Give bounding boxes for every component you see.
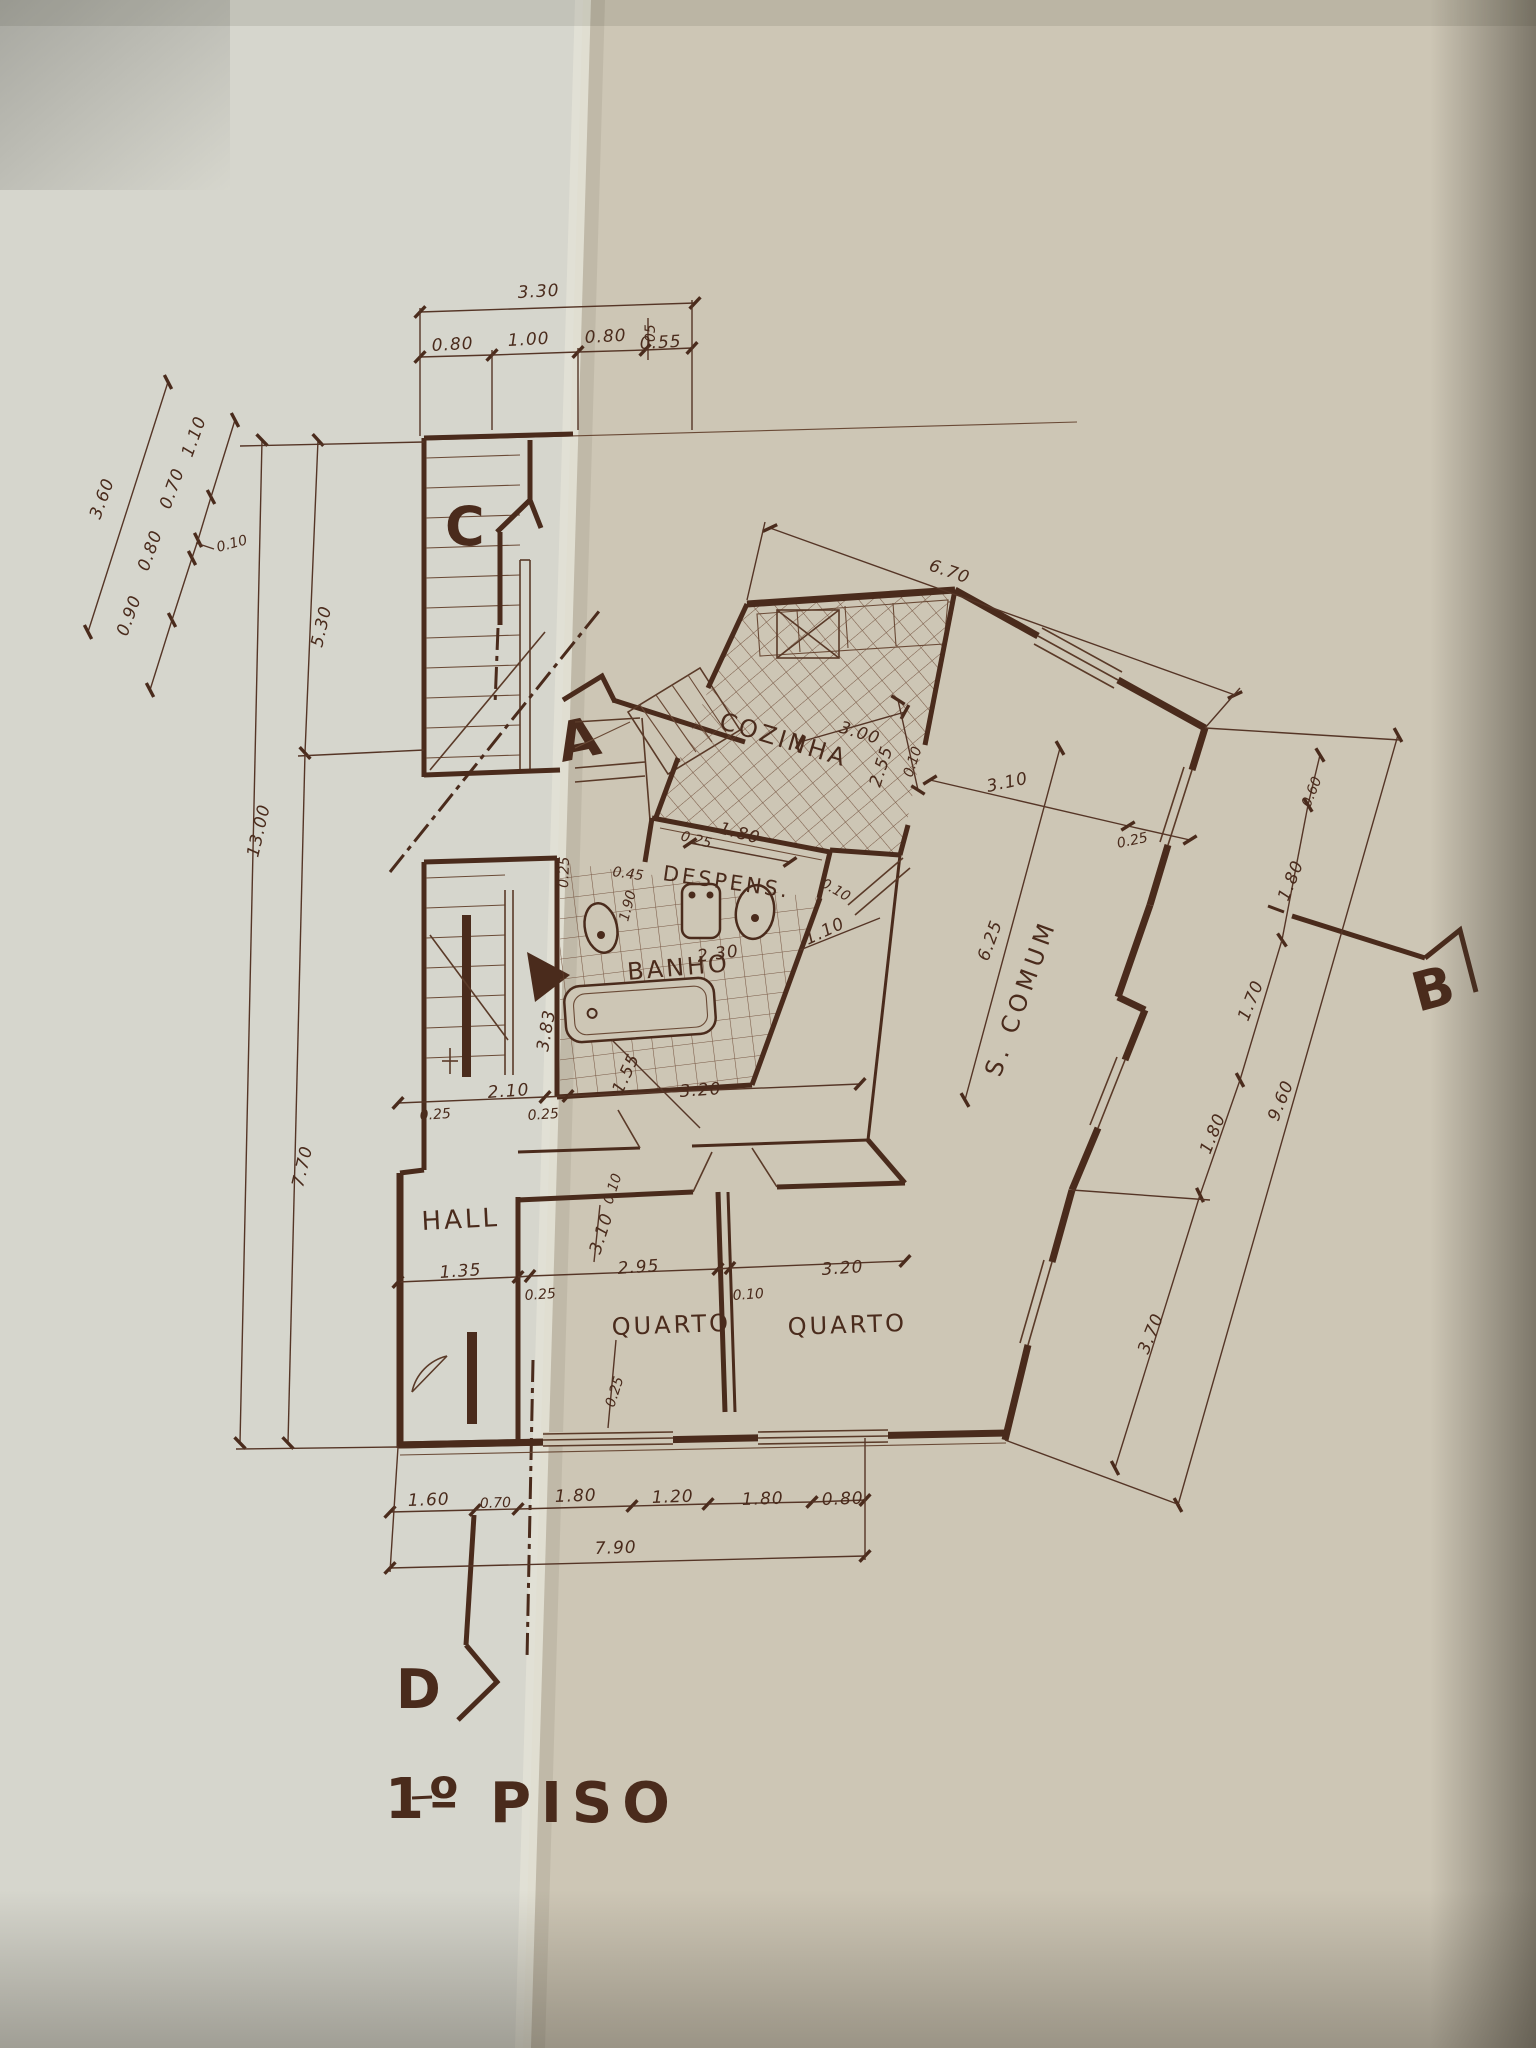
dim-bottom-total: 7.90	[594, 1538, 637, 1559]
window-bedroom1-bottom	[543, 1432, 673, 1446]
window-bedroom2-bottom	[758, 1430, 888, 1444]
dim-bottom-s1: 1.60	[407, 1490, 450, 1511]
dim-top-s1: 0.80	[431, 334, 474, 356]
drawing-title: 1º PISO	[385, 1767, 680, 1836]
hall-label: HALL	[421, 1203, 501, 1237]
dim-bed-hall: 1.35	[439, 1260, 482, 1283]
scanned-floor-plan-photo: C A B D	[0, 0, 1536, 2048]
dim-top-s5: 05	[643, 324, 659, 342]
dim-bottom-s5: 1.80	[741, 1489, 784, 1510]
dim-mid-wall-l: 0.25	[419, 1106, 451, 1124]
right-edge-shadow	[1430, 0, 1536, 2048]
dim-mid-wall-m: 0.25	[527, 1106, 559, 1124]
dim-bottom-s3: 1.80	[554, 1486, 597, 1507]
hall-wall-post	[467, 1332, 477, 1424]
bottom-edge-shadow	[0, 1890, 1536, 2048]
marker-d-label: D	[396, 1658, 441, 1721]
dim-bottom-s2: 0.70	[480, 1495, 512, 1512]
title-word: PISO	[490, 1771, 680, 1836]
bedroom2-label: QUARTO	[787, 1309, 907, 1341]
dim-bottom-s6: 0.80	[821, 1489, 864, 1510]
top-left-corner-shadow	[0, 0, 230, 190]
bathtub-fixture	[563, 977, 717, 1043]
dim-bed-w2: 3.20	[821, 1257, 864, 1280]
top-edge-shadow	[0, 0, 1536, 26]
dim-bed-w1: 2.95	[617, 1256, 660, 1279]
dim-top-s3: 0.80	[584, 326, 627, 348]
dim-mid-s2: 3.20	[679, 1079, 722, 1102]
title-number: 1º	[385, 1767, 464, 1832]
dim-bed-wall-l: 0.25	[524, 1286, 556, 1304]
dim-bed-wall-m: 0.10	[732, 1286, 764, 1304]
dim-top-total: 3.30	[517, 281, 560, 303]
dim-top-s2: 1.00	[507, 329, 550, 351]
floor-plan-svg: C A B D	[0, 0, 1536, 2048]
dim-pantry-side: 0.25	[556, 856, 573, 888]
bedroom1-label: QUARTO	[611, 1309, 731, 1341]
marker-c-label: C	[445, 495, 485, 558]
dim-mid-s1: 2.10	[487, 1080, 530, 1103]
stair-rail-post	[462, 915, 471, 1077]
dim-bottom-s4: 1.20	[651, 1487, 694, 1508]
